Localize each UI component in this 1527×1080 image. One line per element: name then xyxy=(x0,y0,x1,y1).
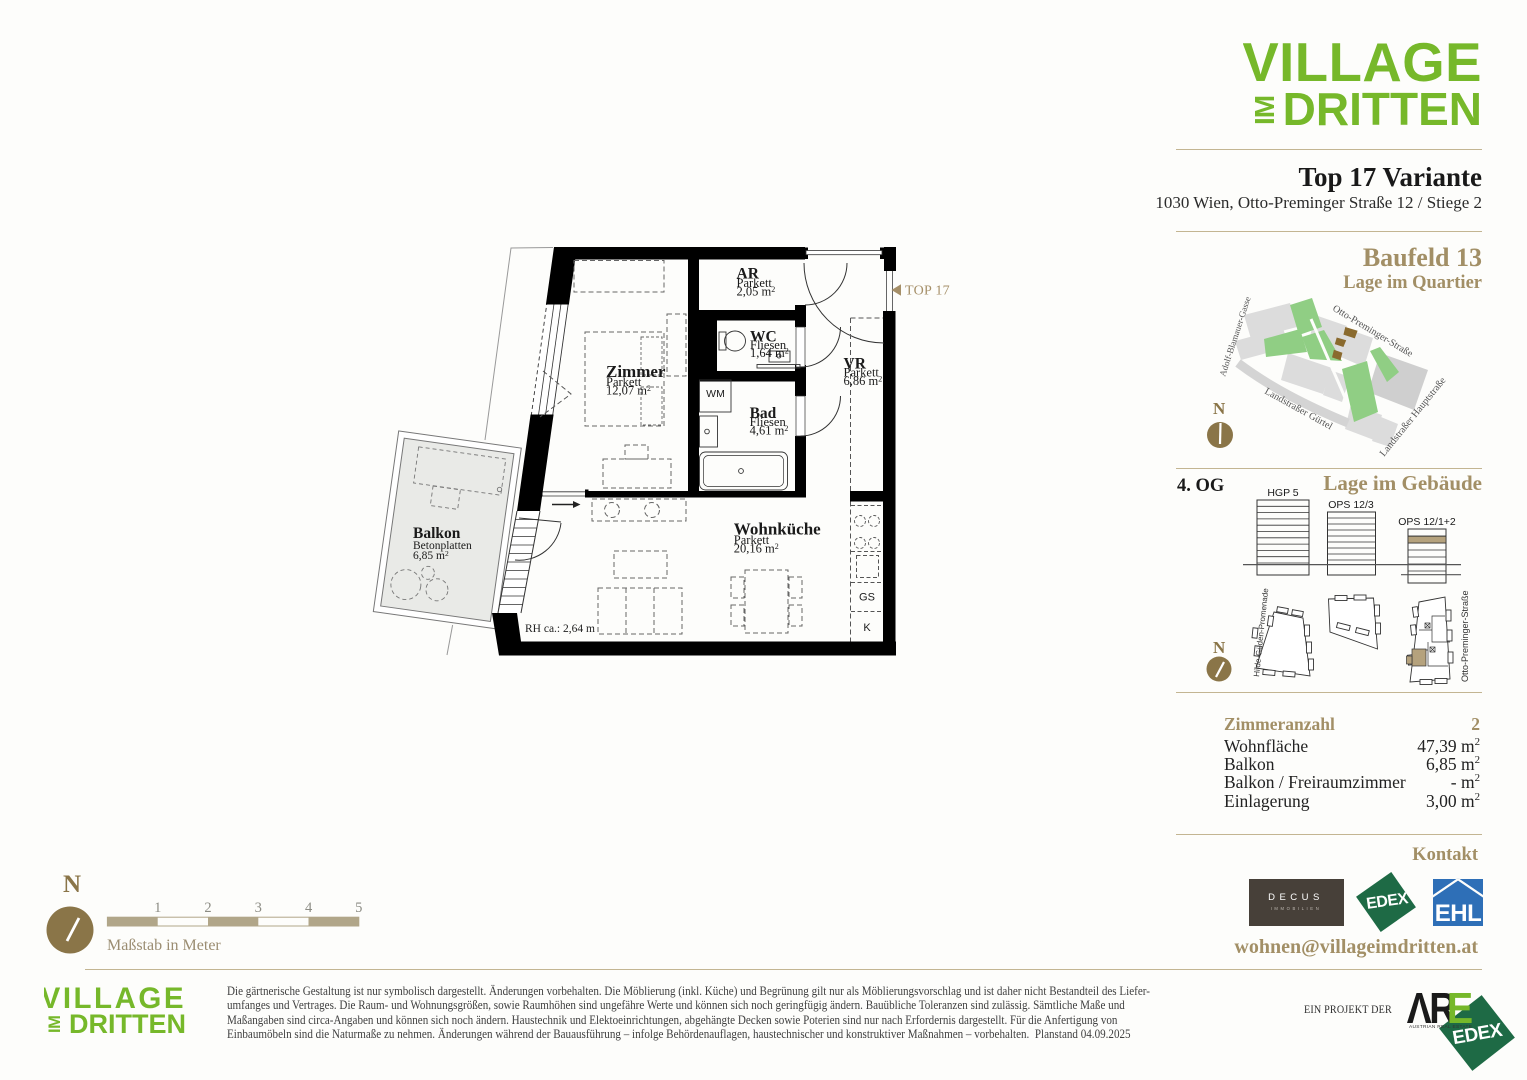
svg-text:OPS 12/1+2: OPS 12/1+2 xyxy=(1398,516,1456,528)
svg-text:HGP 5: HGP 5 xyxy=(1267,487,1298,499)
svg-text:GS: GS xyxy=(859,592,875,604)
svg-text:N: N xyxy=(63,871,81,898)
svg-text:OPS 12/3: OPS 12/3 xyxy=(1328,499,1374,511)
svg-text:1: 1 xyxy=(154,900,161,916)
svg-text:TOP 17: TOP 17 xyxy=(905,284,950,299)
svg-text:3: 3 xyxy=(255,900,262,916)
svg-text:5: 5 xyxy=(355,900,362,916)
svg-text:K: K xyxy=(863,622,871,634)
svg-text:2: 2 xyxy=(204,900,211,916)
svg-text:4: 4 xyxy=(305,900,313,916)
svg-text:4,61 m2: 4,61 m2 xyxy=(750,424,789,438)
svg-text:6,86 m2: 6,86 m2 xyxy=(844,374,883,388)
svg-text:AUSTRIAN REAL ESTATE: AUSTRIAN REAL ESTATE xyxy=(1409,1024,1472,1030)
svg-text:EHL: EHL xyxy=(1435,900,1482,927)
svg-text:N: N xyxy=(1213,638,1226,657)
svg-text:DRITTEN: DRITTEN xyxy=(1283,83,1482,130)
svg-text:WM: WM xyxy=(706,388,725,400)
svg-text:DRITTEN: DRITTEN xyxy=(69,1009,186,1038)
svg-text:Maßstab in Meter: Maßstab in Meter xyxy=(107,937,221,954)
svg-text:RH ca.: 2,64 m: RH ca.: 2,64 m xyxy=(525,623,595,635)
svg-text:2,05 m2: 2,05 m2 xyxy=(737,285,776,299)
svg-text:IMMOBILIEN: IMMOBILIEN xyxy=(1271,906,1322,911)
svg-text:IM: IM xyxy=(1249,96,1280,125)
svg-text:6,85 m2: 6,85 m2 xyxy=(413,549,449,562)
svg-text:Otto-Preminger-Straße: Otto-Preminger-Straße xyxy=(1460,590,1470,682)
svg-text:IM: IM xyxy=(46,1016,64,1033)
svg-text:DECUS: DECUS xyxy=(1268,892,1324,903)
svg-text:12,07 m2: 12,07 m2 xyxy=(606,384,651,398)
svg-text:20,16 m2: 20,16 m2 xyxy=(734,542,779,556)
svg-text:N: N xyxy=(1213,399,1226,418)
svg-text:1,64 m2: 1,64 m2 xyxy=(750,346,789,360)
